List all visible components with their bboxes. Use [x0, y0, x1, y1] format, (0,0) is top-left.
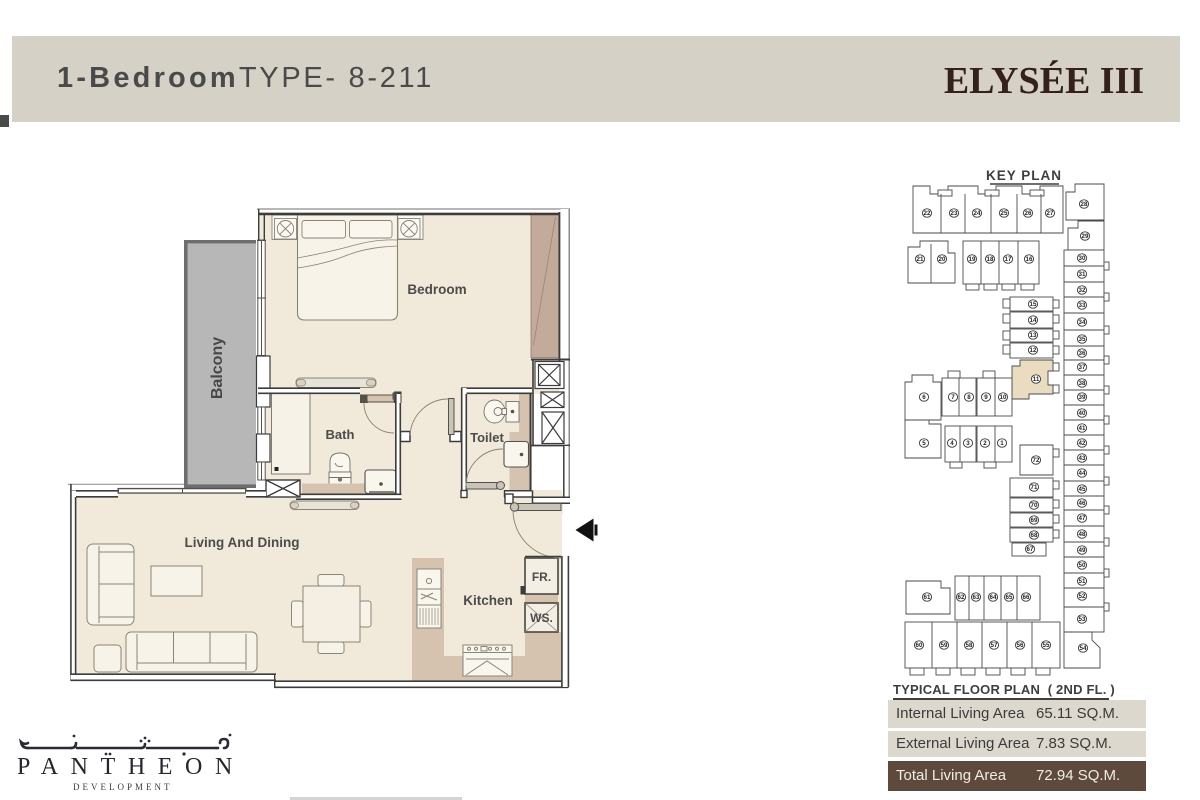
svg-text:34: 34 — [1079, 319, 1086, 326]
svg-text:17: 17 — [1005, 256, 1012, 263]
svg-text:5: 5 — [922, 440, 926, 447]
svg-text:31: 31 — [1079, 271, 1086, 278]
svg-text:26: 26 — [1025, 210, 1032, 217]
svg-text:WS.: WS. — [530, 611, 553, 625]
svg-text:59: 59 — [941, 642, 948, 649]
svg-text:22: 22 — [924, 210, 931, 217]
svg-text:44: 44 — [1079, 470, 1086, 477]
svg-text:Bedroom: Bedroom — [407, 282, 466, 297]
svg-text:Balcony: Balcony — [209, 337, 226, 399]
svg-text:63: 63 — [973, 594, 980, 601]
svg-text:51: 51 — [1079, 578, 1086, 585]
svg-text:28: 28 — [1081, 201, 1088, 208]
svg-text:29: 29 — [1082, 233, 1089, 240]
svg-text:14: 14 — [1030, 317, 1037, 324]
svg-text:12: 12 — [1030, 347, 1037, 354]
svg-text:56: 56 — [1017, 642, 1024, 649]
svg-text:50: 50 — [1079, 562, 1086, 569]
svg-text:57: 57 — [991, 642, 998, 649]
svg-text:16: 16 — [1026, 256, 1033, 263]
svg-text:60: 60 — [916, 642, 923, 649]
svg-text:19: 19 — [969, 256, 976, 263]
svg-text:36: 36 — [1079, 350, 1086, 357]
svg-text:47: 47 — [1079, 515, 1086, 522]
svg-text:11: 11 — [1033, 376, 1040, 383]
svg-text:Living And Dining: Living And Dining — [185, 535, 300, 550]
svg-text:71: 71 — [1031, 484, 1038, 491]
svg-text:8: 8 — [967, 394, 971, 401]
svg-text:43: 43 — [1079, 455, 1086, 462]
svg-text:21: 21 — [917, 256, 924, 263]
svg-text:39: 39 — [1079, 394, 1086, 401]
svg-text:46: 46 — [1079, 500, 1086, 507]
svg-text:15: 15 — [1030, 301, 1037, 308]
svg-text:38: 38 — [1079, 380, 1086, 387]
svg-text:30: 30 — [1079, 255, 1086, 262]
svg-text:FR.: FR. — [532, 570, 551, 584]
svg-text:7: 7 — [951, 394, 955, 401]
svg-text:1: 1 — [1000, 440, 1004, 447]
svg-text:2: 2 — [983, 440, 987, 447]
svg-text:42: 42 — [1079, 440, 1086, 447]
svg-text:45: 45 — [1079, 486, 1086, 493]
svg-text:9: 9 — [984, 394, 988, 401]
svg-text:32: 32 — [1079, 287, 1086, 294]
svg-text:13: 13 — [1030, 332, 1037, 339]
svg-text:Kitchen: Kitchen — [463, 593, 513, 608]
svg-text:23: 23 — [951, 210, 958, 217]
svg-text:37: 37 — [1079, 364, 1086, 371]
svg-text:48: 48 — [1079, 531, 1086, 538]
svg-text:6: 6 — [922, 394, 926, 401]
svg-text:3: 3 — [966, 440, 970, 447]
svg-text:70: 70 — [1031, 502, 1038, 509]
svg-text:55: 55 — [1043, 642, 1050, 649]
svg-text:10: 10 — [1000, 394, 1007, 401]
svg-text:Toilet: Toilet — [470, 430, 504, 445]
svg-text:66: 66 — [1023, 594, 1030, 601]
svg-text:61: 61 — [924, 594, 931, 601]
svg-text:Bath: Bath — [326, 427, 355, 442]
svg-text:53: 53 — [1079, 616, 1086, 623]
svg-text:24: 24 — [974, 210, 981, 217]
svg-text:49: 49 — [1079, 547, 1086, 554]
svg-text:KEY PLAN: KEY PLAN — [986, 168, 1062, 183]
svg-text:25: 25 — [1001, 210, 1008, 217]
svg-text:67: 67 — [1027, 546, 1034, 553]
svg-text:62: 62 — [958, 594, 965, 601]
svg-text:33: 33 — [1079, 302, 1086, 309]
svg-text:40: 40 — [1079, 410, 1086, 417]
svg-text:64: 64 — [990, 594, 997, 601]
svg-text:20: 20 — [939, 256, 946, 263]
svg-text:18: 18 — [987, 256, 994, 263]
svg-text:35: 35 — [1079, 336, 1086, 343]
svg-text:4: 4 — [950, 440, 954, 447]
svg-text:69: 69 — [1031, 517, 1038, 524]
svg-text:65: 65 — [1006, 594, 1013, 601]
svg-text:68: 68 — [1031, 532, 1038, 539]
svg-text:41: 41 — [1079, 425, 1086, 432]
svg-text:52: 52 — [1079, 593, 1086, 600]
svg-text:27: 27 — [1047, 210, 1054, 217]
svg-text:72: 72 — [1033, 457, 1040, 464]
svg-text:58: 58 — [966, 642, 973, 649]
svg-text:54: 54 — [1080, 645, 1087, 652]
